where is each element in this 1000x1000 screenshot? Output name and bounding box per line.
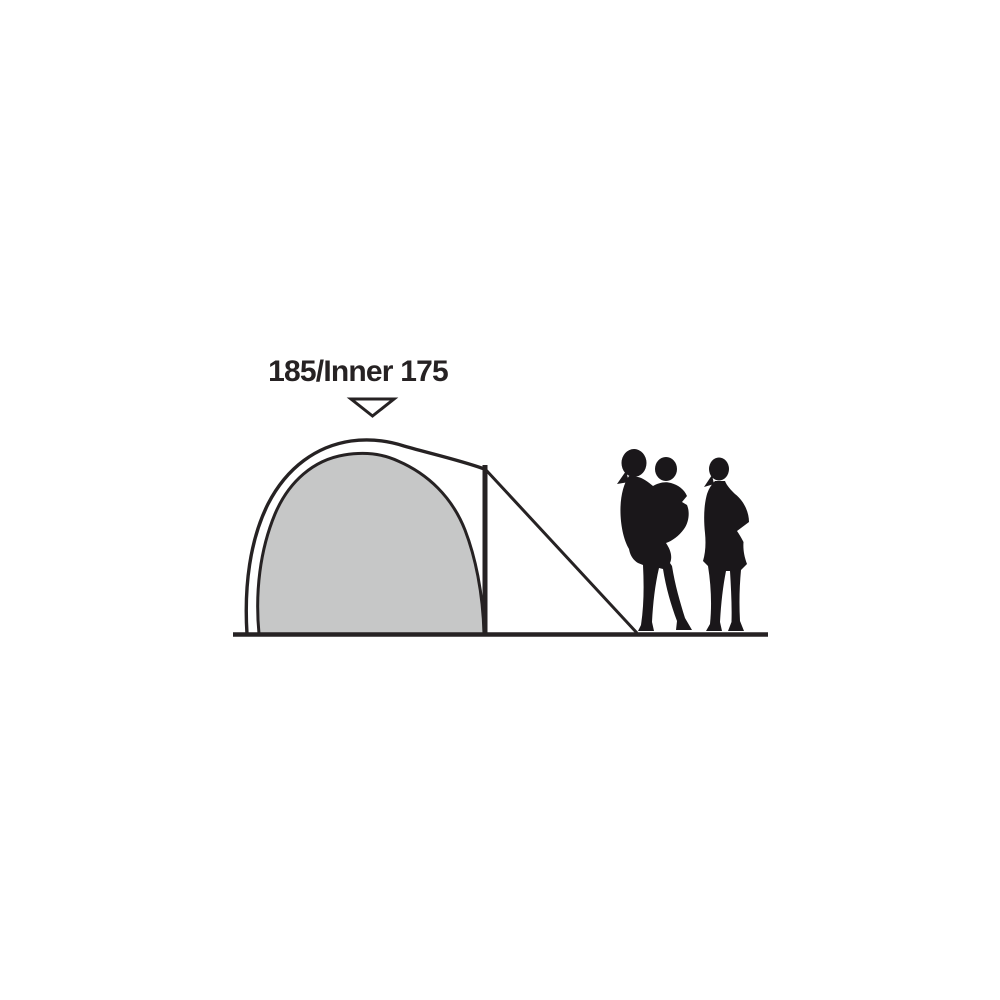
guy-line <box>486 470 637 633</box>
adult-silhouette <box>703 458 749 632</box>
tent-inner-cabin <box>258 453 484 634</box>
adult-holding-child-silhouette <box>617 449 692 631</box>
diagram-canvas: 185/Inner 175 <box>0 0 1000 1000</box>
height-marker-triangle-icon <box>351 399 394 416</box>
height-label: 185/Inner 175 <box>268 355 448 388</box>
tent-height-diagram: 185/Inner 175 <box>0 0 1000 1000</box>
